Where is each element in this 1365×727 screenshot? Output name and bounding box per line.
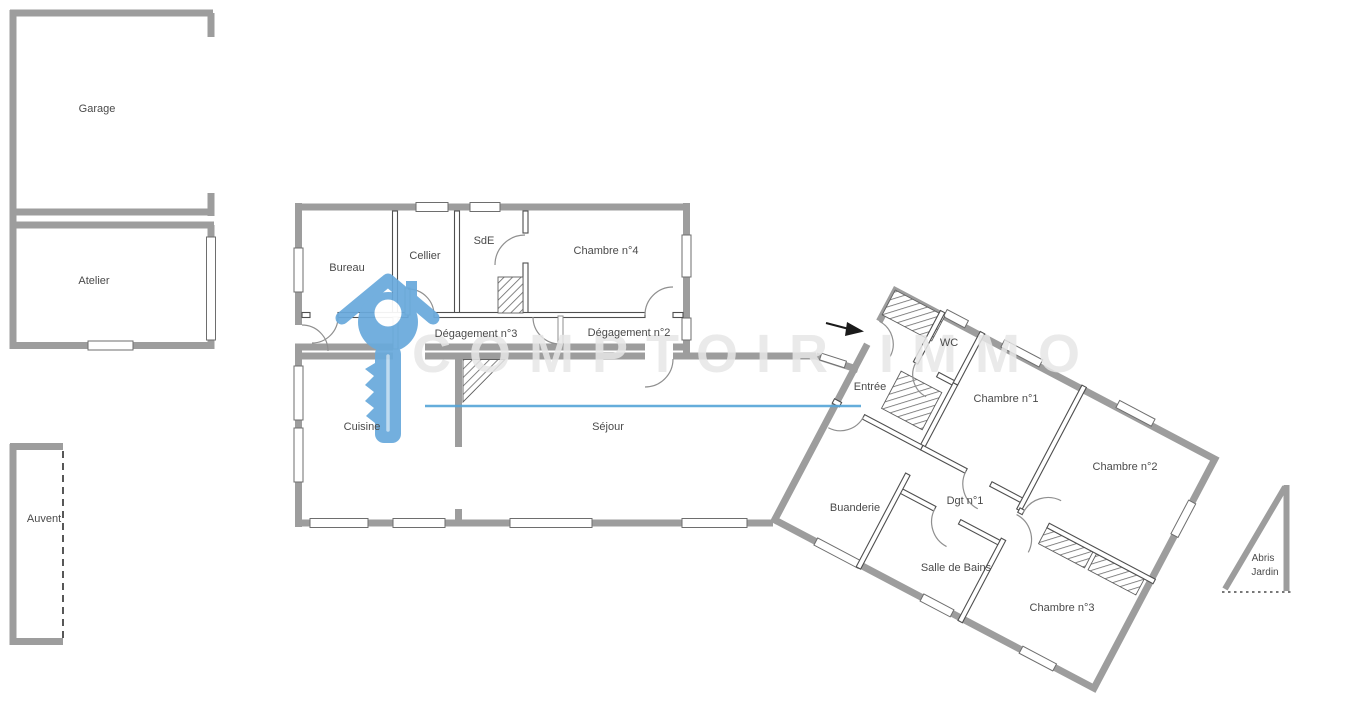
floor-plan-drawing: COMPTOIR IMMO Garage Atelier Auvent Bure… <box>0 0 1365 727</box>
sde-door-arc <box>495 235 525 265</box>
label-chambre3: Chambre n°3 <box>1030 602 1095 614</box>
label-entree: Entrée <box>854 381 886 393</box>
floor-plan-page: COMPTOIR IMMO Garage Atelier Auvent Bure… <box>0 0 1365 727</box>
label-garage: Garage <box>79 103 116 115</box>
label-auvent: Auvent <box>27 513 61 525</box>
sdb-door-arc <box>922 509 960 547</box>
label-cellier: Cellier <box>409 250 441 262</box>
atelier-window-south <box>88 341 133 350</box>
chambre3-door-arc <box>1004 515 1042 553</box>
chambre2-window-east <box>1171 500 1196 537</box>
label-wc: WC <box>940 337 958 349</box>
garage-atelier-block <box>10 10 216 350</box>
label-chambre4: Chambre n°4 <box>574 245 639 257</box>
label-salle-de-bains: Salle de Bains <box>921 562 992 574</box>
cuisine-window-south-2 <box>393 519 445 528</box>
label-bureau: Bureau <box>329 262 364 274</box>
logo-key-teeth <box>365 363 375 423</box>
label-abris: Abris <box>1252 553 1275 564</box>
label-sejour: Séjour <box>592 421 624 433</box>
chambre4-door-arc <box>645 287 673 315</box>
sde-shower-hatch <box>498 277 523 313</box>
cuisine-window-west-2 <box>294 428 303 482</box>
bureau-window-west <box>294 248 303 292</box>
label-dgt1: Dgt n°1 <box>947 495 984 507</box>
atelier-window-east <box>207 237 216 340</box>
wall-stub <box>455 509 462 520</box>
chambre4-window-east <box>682 235 691 277</box>
label-degagement2: Dégagement n°2 <box>588 327 671 339</box>
chambre3-window-south <box>1019 646 1056 671</box>
sde-window-north <box>470 203 500 212</box>
cuisine-window-south-1 <box>310 519 368 528</box>
label-chambre2: Chambre n°2 <box>1093 461 1158 473</box>
label-jardin: Jardin <box>1251 567 1278 578</box>
label-sde: SdE <box>474 235 495 247</box>
cuisine-window-west-1 <box>294 366 303 420</box>
label-atelier: Atelier <box>78 275 110 287</box>
label-chambre1: Chambre n°1 <box>974 393 1039 405</box>
sejour-window-south-2 <box>682 519 747 528</box>
label-buanderie: Buanderie <box>830 502 880 514</box>
logo-key-hole <box>375 300 402 327</box>
sdb-window-south <box>920 594 954 617</box>
label-cuisine: Cuisine <box>344 421 381 433</box>
cellier-window-north <box>416 203 448 212</box>
label-degagement3: Dégagement n°3 <box>435 328 518 340</box>
buanderie-window-south <box>814 538 862 568</box>
sejour-window-south-1 <box>510 519 592 528</box>
auvent-structure <box>10 444 63 645</box>
